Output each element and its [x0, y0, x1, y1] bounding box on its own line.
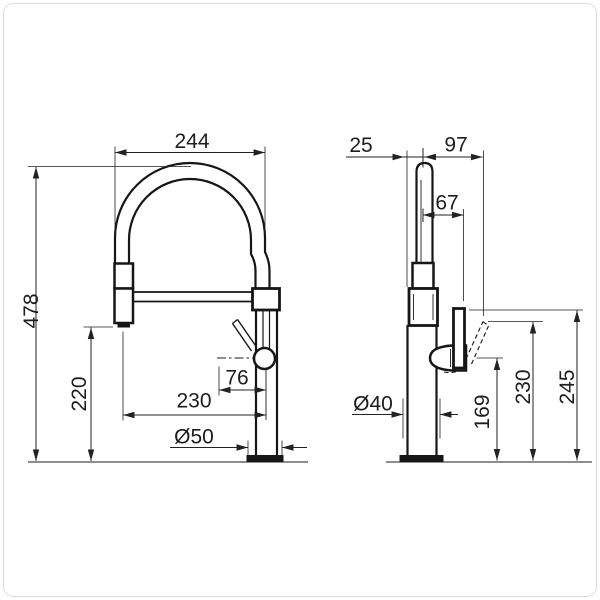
dim-label-169: 169 — [471, 394, 494, 429]
lever-front — [233, 320, 257, 352]
dim-overall-height: 478 — [20, 167, 191, 462]
support-arm — [133, 292, 252, 302]
drawing-canvas: 244 478 220 230 76 — [0, 0, 600, 600]
dim-base-diameter-side: Ø40 — [352, 393, 458, 439]
collar-side — [409, 289, 438, 326]
dim-label-25: 25 — [349, 134, 372, 157]
body-front — [253, 289, 280, 456]
card-border — [4, 4, 597, 597]
dim-hose-arc-width: 244 — [115, 130, 265, 233]
dim-label-o40: Ø40 — [353, 393, 393, 416]
spout-side — [417, 163, 433, 263]
dim-label-o50: Ø50 — [174, 426, 214, 449]
faucet-dimension-drawing: 244 478 220 230 76 — [0, 0, 600, 600]
dim-label-230-front: 230 — [176, 390, 211, 413]
dim-label-478: 478 — [20, 293, 43, 328]
dim-spray-head-height: 220 — [68, 327, 113, 461]
dim-handle-offset: 76 — [219, 367, 266, 396]
spray-head-side — [413, 263, 434, 289]
dim-handle-pivot-height: 169 — [471, 358, 503, 461]
body-side — [408, 325, 437, 455]
dim-label-97: 97 — [444, 134, 467, 157]
front-view: 244 478 220 230 76 — [20, 130, 308, 462]
dim-label-67: 67 — [435, 192, 458, 215]
dim-label-244: 244 — [174, 130, 209, 153]
handle-front — [217, 320, 275, 370]
side-view: 25 97 67 Ø40 169 230 — [346, 134, 592, 463]
base-flange-front — [247, 455, 284, 462]
base-flange-side — [400, 455, 444, 462]
hose-inner — [129, 179, 256, 289]
dim-label-230-side: 230 — [512, 369, 535, 404]
dim-tilted-lever-height: 230 — [488, 322, 543, 461]
dim-label-76: 76 — [225, 367, 248, 390]
hose-outer — [115, 163, 270, 289]
dim-label-220: 220 — [68, 376, 91, 411]
dim-base-diameter-front: Ø50 — [170, 426, 307, 457]
spray-head — [115, 264, 134, 328]
lever-upright — [454, 309, 465, 369]
dim-label-245: 245 — [556, 369, 579, 404]
handle-pivot-circle — [254, 348, 275, 369]
